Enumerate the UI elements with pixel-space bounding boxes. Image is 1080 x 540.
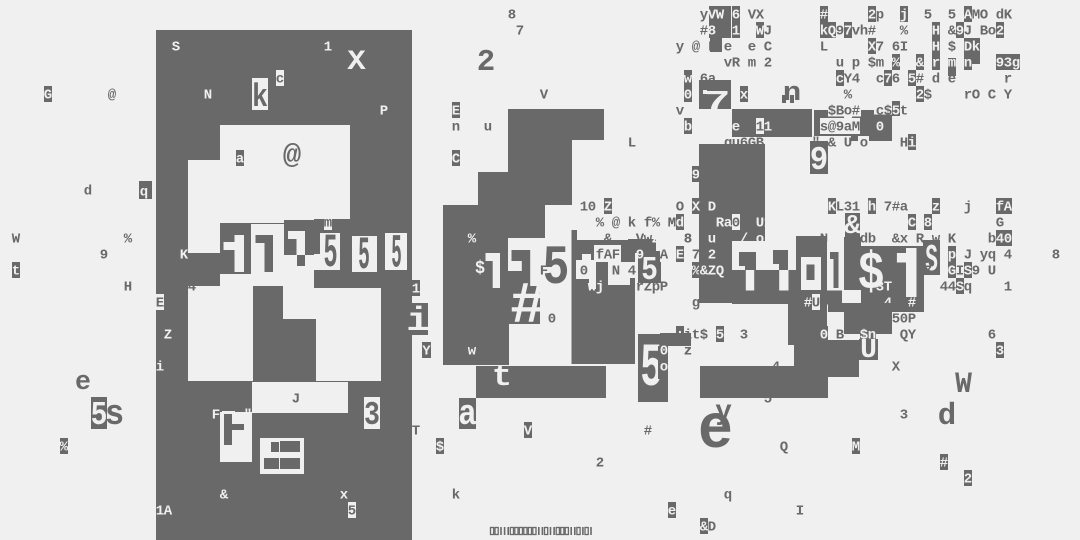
svg-text:P: P bbox=[660, 280, 668, 296]
svg-text:6: 6 bbox=[732, 8, 740, 24]
svg-text:x: x bbox=[900, 232, 909, 248]
svg-text:x: x bbox=[340, 488, 349, 504]
svg-text:4: 4 bbox=[852, 72, 860, 88]
svg-text:&: & bbox=[916, 56, 925, 72]
svg-text:w: w bbox=[684, 72, 693, 88]
svg-text:0: 0 bbox=[580, 264, 588, 280]
svg-text:@: @ bbox=[283, 139, 302, 171]
svg-text:v: v bbox=[676, 104, 685, 120]
svg-text:&: & bbox=[604, 232, 613, 248]
svg-text:2: 2 bbox=[764, 56, 772, 72]
svg-text:1: 1 bbox=[1004, 280, 1012, 296]
svg-text:0: 0 bbox=[1004, 232, 1012, 248]
svg-text:a: a bbox=[236, 152, 245, 168]
svg-text:E: E bbox=[156, 296, 164, 312]
svg-text:5: 5 bbox=[348, 504, 356, 520]
svg-text:A: A bbox=[1004, 200, 1013, 216]
svg-text:5: 5 bbox=[716, 328, 724, 344]
svg-text:%: % bbox=[892, 56, 901, 72]
svg-text:J: J bbox=[964, 24, 972, 40]
svg-text:e: e bbox=[724, 40, 732, 56]
svg-text:%: % bbox=[844, 88, 853, 104]
svg-text:4: 4 bbox=[628, 264, 636, 280]
svg-text:Z: Z bbox=[652, 232, 660, 248]
svg-text:U: U bbox=[812, 296, 820, 312]
svg-text:e: e bbox=[668, 504, 676, 520]
svg-text:#: # bbox=[820, 8, 828, 24]
svg-text:M: M bbox=[852, 440, 860, 456]
svg-text:Y: Y bbox=[1004, 88, 1013, 104]
svg-text:2: 2 bbox=[596, 456, 604, 472]
svg-text:4: 4 bbox=[188, 280, 196, 296]
svg-text:K: K bbox=[1004, 8, 1013, 24]
svg-text:d: d bbox=[84, 184, 92, 200]
svg-text:k: k bbox=[252, 79, 268, 116]
svg-text:R: R bbox=[916, 232, 925, 248]
svg-text:a: a bbox=[458, 395, 476, 436]
svg-text:d: d bbox=[938, 399, 956, 434]
svg-text:J: J bbox=[964, 248, 972, 264]
svg-text:e: e bbox=[732, 120, 740, 136]
svg-text:m: m bbox=[876, 56, 884, 72]
svg-text:F: F bbox=[212, 408, 220, 424]
svg-text:3: 3 bbox=[996, 344, 1004, 360]
svg-text:w: w bbox=[468, 344, 477, 360]
svg-text:k: k bbox=[452, 488, 460, 504]
svg-text:q: q bbox=[724, 488, 732, 504]
svg-text:#: # bbox=[916, 72, 924, 88]
svg-text:1: 1 bbox=[764, 216, 772, 232]
svg-text:2: 2 bbox=[996, 24, 1004, 40]
svg-text:W: W bbox=[955, 367, 973, 401]
svg-text:q: q bbox=[964, 280, 972, 296]
svg-text:T: T bbox=[412, 424, 420, 440]
svg-text:g: g bbox=[692, 296, 700, 312]
svg-text:E: E bbox=[676, 248, 684, 264]
svg-text:Y: Y bbox=[908, 328, 917, 344]
svg-text:9: 9 bbox=[636, 248, 644, 264]
svg-text:j: j bbox=[900, 8, 908, 24]
svg-text:%: % bbox=[468, 232, 477, 248]
svg-text:$: $ bbox=[924, 88, 932, 104]
svg-text:V: V bbox=[540, 88, 549, 104]
svg-text:X: X bbox=[692, 200, 701, 216]
svg-text:5: 5 bbox=[764, 392, 772, 408]
svg-text:#: # bbox=[644, 424, 652, 440]
svg-text:r: r bbox=[1004, 72, 1012, 88]
svg-text:4: 4 bbox=[1004, 248, 1012, 264]
svg-text:A: A bbox=[164, 504, 173, 520]
svg-text:@: @ bbox=[108, 88, 117, 104]
svg-text:D: D bbox=[708, 520, 716, 536]
svg-text:C: C bbox=[764, 40, 773, 56]
svg-text:#: # bbox=[868, 24, 876, 40]
svg-text:Y: Y bbox=[422, 344, 431, 360]
svg-text:H: H bbox=[932, 40, 940, 56]
svg-text:X: X bbox=[347, 45, 366, 77]
svg-text:2: 2 bbox=[708, 248, 716, 264]
svg-text:0: 0 bbox=[588, 200, 596, 216]
svg-text:u: u bbox=[484, 120, 492, 136]
svg-text:t: t bbox=[12, 264, 20, 280]
svg-text:%: % bbox=[60, 440, 69, 456]
svg-text:o: o bbox=[860, 136, 868, 152]
svg-text:$: $ bbox=[436, 440, 444, 456]
svg-text:q: q bbox=[988, 248, 996, 264]
svg-text:C: C bbox=[452, 152, 461, 168]
svg-text:c: c bbox=[276, 72, 284, 88]
svg-text:d: d bbox=[676, 216, 684, 232]
svg-text:i: i bbox=[908, 280, 916, 296]
svg-text:e: e bbox=[748, 40, 756, 56]
svg-text:4: 4 bbox=[772, 360, 780, 376]
svg-text:K: K bbox=[180, 248, 189, 264]
svg-text:z: z bbox=[932, 200, 940, 216]
svg-text:2: 2 bbox=[477, 45, 495, 80]
svg-text:W: W bbox=[716, 8, 725, 24]
svg-text:n: n bbox=[452, 120, 460, 136]
svg-text:$: $ bbox=[948, 40, 956, 56]
svg-text:n: n bbox=[964, 56, 972, 72]
svg-text:8: 8 bbox=[508, 8, 516, 24]
svg-text:%: % bbox=[652, 216, 661, 232]
svg-text:5: 5 bbox=[323, 228, 337, 281]
svg-text:5: 5 bbox=[948, 8, 956, 24]
svg-text:9: 9 bbox=[972, 264, 980, 280]
svg-text:@: @ bbox=[692, 40, 701, 56]
svg-text:O: O bbox=[980, 8, 988, 24]
svg-text:1: 1 bbox=[324, 40, 332, 56]
svg-text:E: E bbox=[452, 104, 460, 120]
svg-text:A: A bbox=[660, 248, 669, 264]
svg-text:p: p bbox=[852, 56, 860, 72]
svg-text:W: W bbox=[12, 232, 21, 248]
svg-text:7: 7 bbox=[704, 87, 731, 118]
svg-text:h: h bbox=[868, 200, 876, 216]
svg-text:X: X bbox=[756, 8, 765, 24]
svg-text:H: H bbox=[124, 280, 132, 296]
svg-text:U: U bbox=[860, 336, 877, 366]
svg-text:u: u bbox=[836, 56, 844, 72]
svg-text:#: # bbox=[908, 296, 916, 312]
svg-text:F: F bbox=[540, 264, 548, 280]
svg-text:b: b bbox=[868, 232, 876, 248]
svg-text:P: P bbox=[380, 104, 388, 120]
svg-text:C: C bbox=[908, 216, 917, 232]
svg-text:J: J bbox=[292, 392, 300, 408]
svg-text:8: 8 bbox=[684, 232, 692, 248]
svg-text:V: V bbox=[524, 424, 533, 440]
svg-text:n: n bbox=[783, 78, 801, 109]
svg-text:N: N bbox=[612, 264, 620, 280]
svg-text:r: r bbox=[932, 56, 940, 72]
svg-text:0: 0 bbox=[660, 344, 668, 360]
svg-text:Q: Q bbox=[780, 440, 788, 456]
svg-text:': ' bbox=[620, 248, 628, 264]
svg-text:&: & bbox=[220, 488, 229, 504]
svg-text:9: 9 bbox=[100, 248, 108, 264]
svg-text:1: 1 bbox=[412, 282, 420, 298]
svg-text:3: 3 bbox=[364, 397, 380, 435]
svg-text:Z: Z bbox=[164, 328, 172, 344]
svg-text:P: P bbox=[908, 312, 916, 328]
svg-text:s: s bbox=[105, 394, 124, 435]
svg-text:&: & bbox=[828, 136, 837, 152]
svg-text:C: C bbox=[988, 88, 997, 104]
svg-text:K: K bbox=[948, 232, 957, 248]
svg-text:M: M bbox=[852, 120, 860, 136]
svg-text:B: B bbox=[836, 328, 845, 344]
svg-text:%: % bbox=[900, 24, 909, 40]
svg-text:5: 5 bbox=[924, 8, 932, 24]
svg-text:T: T bbox=[884, 280, 892, 296]
svg-text:G: G bbox=[44, 88, 52, 104]
svg-text:0: 0 bbox=[684, 88, 692, 104]
svg-text:7: 7 bbox=[692, 248, 700, 264]
svg-text:i: i bbox=[908, 136, 916, 152]
svg-text:Q: Q bbox=[716, 264, 724, 280]
svg-text:%: % bbox=[596, 216, 605, 232]
svg-text:1: 1 bbox=[764, 120, 772, 136]
svg-text:m: m bbox=[948, 56, 956, 72]
svg-text:e: e bbox=[75, 367, 91, 397]
svg-text:I: I bbox=[796, 504, 804, 520]
svg-text:0: 0 bbox=[732, 216, 740, 232]
svg-text:b: b bbox=[684, 120, 692, 136]
svg-text:8: 8 bbox=[924, 216, 932, 232]
svg-text:z: z bbox=[684, 344, 692, 360]
svg-text:m: m bbox=[324, 216, 332, 232]
svg-text:p: p bbox=[948, 248, 956, 264]
svg-text:$: $ bbox=[700, 328, 708, 344]
svg-text:u: u bbox=[708, 232, 716, 248]
svg-text:L: L bbox=[628, 136, 636, 152]
svg-text:x: x bbox=[740, 88, 749, 104]
svg-text:8: 8 bbox=[708, 24, 716, 40]
svg-text:$: $ bbox=[475, 258, 485, 279]
svg-text:w: w bbox=[932, 232, 941, 248]
svg-text:2: 2 bbox=[964, 472, 972, 488]
svg-text:9: 9 bbox=[692, 168, 700, 184]
svg-text:p: p bbox=[876, 8, 884, 24]
svg-text:O: O bbox=[676, 200, 684, 216]
svg-text:J: J bbox=[764, 24, 772, 40]
svg-text:1: 1 bbox=[732, 24, 740, 40]
svg-text:o: o bbox=[660, 360, 668, 376]
svg-text:e: e bbox=[698, 395, 733, 466]
svg-text:0: 0 bbox=[820, 328, 828, 344]
svg-text:m: m bbox=[748, 56, 756, 72]
svg-text:N: N bbox=[204, 88, 212, 104]
svg-text:i: i bbox=[156, 360, 164, 376]
svg-text:i: i bbox=[406, 302, 430, 340]
svg-text:Z: Z bbox=[604, 200, 612, 216]
svg-text:G: G bbox=[996, 216, 1004, 232]
svg-text:5: 5 bbox=[391, 227, 402, 281]
svg-text:j: j bbox=[964, 200, 972, 216]
svg-text:S: S bbox=[172, 40, 180, 56]
svg-text:d: d bbox=[932, 72, 940, 88]
svg-text:L: L bbox=[820, 40, 828, 56]
svg-text:X: X bbox=[892, 360, 901, 376]
svg-text:y: y bbox=[676, 40, 685, 56]
svg-text:7: 7 bbox=[924, 264, 932, 280]
svg-text:R: R bbox=[732, 56, 741, 72]
svg-text:8: 8 bbox=[1052, 248, 1060, 264]
svg-text:6: 6 bbox=[988, 328, 996, 344]
svg-text:%: % bbox=[124, 232, 133, 248]
svg-text:q: q bbox=[140, 185, 148, 201]
svg-text:0: 0 bbox=[548, 312, 556, 328]
svg-text:5: 5 bbox=[358, 229, 370, 282]
svg-text:j: j bbox=[596, 280, 604, 296]
svg-text:U: U bbox=[988, 264, 996, 280]
svg-text:e: e bbox=[948, 72, 956, 88]
svg-text:#: # bbox=[940, 456, 948, 472]
svg-text:U: U bbox=[844, 136, 852, 152]
svg-text:0: 0 bbox=[876, 120, 884, 136]
svg-text:6: 6 bbox=[892, 72, 900, 88]
svg-text:D: D bbox=[708, 200, 716, 216]
svg-text:t: t bbox=[900, 104, 908, 120]
svg-text:k: k bbox=[972, 40, 980, 56]
svg-text:k: k bbox=[628, 216, 636, 232]
svg-text:a: a bbox=[900, 200, 909, 216]
svg-text:7: 7 bbox=[876, 40, 884, 56]
svg-text:H: H bbox=[932, 24, 940, 40]
svg-text:3: 3 bbox=[900, 408, 908, 424]
svg-text:@: @ bbox=[612, 216, 621, 232]
svg-text:": " bbox=[812, 136, 820, 152]
svg-text:#: # bbox=[852, 104, 860, 120]
svg-text:t: t bbox=[492, 359, 512, 394]
svg-text:L: L bbox=[708, 40, 716, 56]
svg-text:3: 3 bbox=[740, 328, 748, 344]
svg-text:I: I bbox=[900, 40, 908, 56]
svg-text:7: 7 bbox=[516, 24, 524, 40]
svg-text:#: # bbox=[510, 274, 547, 340]
svg-text:g: g bbox=[1012, 56, 1020, 72]
svg-text:O: O bbox=[972, 88, 980, 104]
